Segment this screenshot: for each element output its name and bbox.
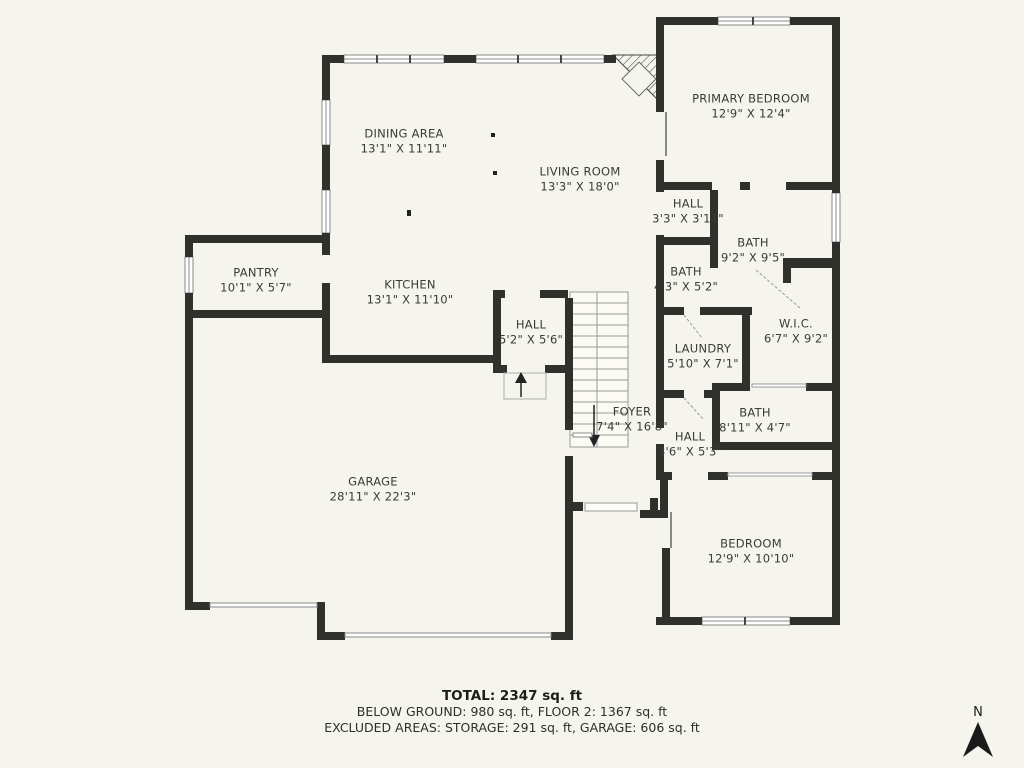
total-area-text: TOTAL: 2347 sq. ft: [324, 688, 699, 704]
room-dims: 13'1" X 11'10": [367, 292, 454, 307]
room-name: PRIMARY BEDROOM: [692, 92, 810, 106]
room-label-hall-lower: HALL 3'6" X 5'3": [658, 430, 722, 459]
area-summary: TOTAL: 2347 sq. ft BELOW GROUND: 980 sq.…: [324, 688, 699, 736]
room-name: GARAGE: [348, 475, 398, 489]
room-name: BATH: [670, 265, 702, 279]
floors-area-text: BELOW GROUND: 980 sq. ft, FLOOR 2: 1367 …: [324, 704, 699, 720]
room-dims: 28'11" X 22'3": [330, 489, 417, 504]
excluded-area-text: EXCLUDED AREAS: STORAGE: 291 sq. ft, GAR…: [324, 720, 699, 736]
room-label-living: LIVING ROOM 13'3" X 18'0": [540, 165, 621, 194]
room-label-hall-mid: HALL 5'2" X 5'6": [499, 318, 563, 347]
room-dims: 13'1" X 11'11": [361, 141, 448, 156]
room-label-garage: GARAGE 28'11" X 22'3": [330, 475, 417, 504]
room-label-pantry: PANTRY 10'1" X 5'7": [220, 266, 292, 295]
room-dims: 3'6" X 5'3": [658, 444, 722, 459]
room-name: BATH: [739, 406, 771, 420]
room-label-dining: DINING AREA 13'1" X 11'11": [361, 127, 448, 156]
room-dims: 5'10" X 7'1": [667, 356, 739, 371]
room-name: KITCHEN: [384, 278, 436, 292]
room-name: BEDROOM: [720, 537, 782, 551]
room-dims: 6'7" X 9'2": [764, 331, 828, 346]
room-name: PANTRY: [233, 266, 278, 280]
room-name: LIVING ROOM: [540, 165, 621, 179]
room-name: LAUNDRY: [675, 342, 731, 356]
room-name: HALL: [673, 197, 703, 211]
north-arrow-icon: [958, 720, 998, 760]
room-label-laundry: LAUNDRY 5'10" X 7'1": [667, 342, 739, 371]
room-dims: 13'3" X 18'0": [540, 179, 621, 194]
room-name: BATH: [737, 236, 769, 250]
room-dims: 10'1" X 5'7": [220, 280, 292, 295]
room-label-bedroom: BEDROOM 12'9" X 10'10": [708, 537, 795, 566]
floor-plan-drawing: [0, 0, 1024, 768]
floor-plan-page: DINING AREA 13'1" X 11'11" LIVING ROOM 1…: [0, 0, 1024, 768]
room-name: FOYER: [613, 405, 652, 419]
corner-stairs-icon: [613, 55, 663, 105]
compass: N: [958, 706, 998, 764]
compass-north-label: N: [958, 706, 998, 720]
room-dims: 12'9" X 10'10": [708, 551, 795, 566]
room-dims: 3'3" X 3'11": [652, 211, 724, 226]
wall-overlay: [656, 264, 664, 294]
room-label-bath-primary: BATH 9'2" X 9'5": [721, 236, 785, 265]
room-name: HALL: [516, 318, 546, 332]
room-dims: 8'11" X 4'7": [719, 420, 791, 435]
room-name: DINING AREA: [364, 127, 443, 141]
room-label-bath-hall: BATH 8'11" X 4'7": [719, 406, 791, 435]
room-label-hall-upper: HALL 3'3" X 3'11": [652, 197, 724, 226]
room-dims: 12'9" X 12'4": [692, 106, 810, 121]
room-label-primary-bedroom: PRIMARY BEDROOM 12'9" X 12'4": [692, 92, 810, 121]
room-name: HALL: [675, 430, 705, 444]
room-dims: 5'2" X 5'6": [499, 332, 563, 347]
room-label-wic: W.I.C. 6'7" X 9'2": [764, 317, 828, 346]
room-name: W.I.C.: [779, 317, 813, 331]
room-label-kitchen: KITCHEN 13'1" X 11'10": [367, 278, 454, 307]
room-dims: 9'2" X 9'5": [721, 250, 785, 265]
